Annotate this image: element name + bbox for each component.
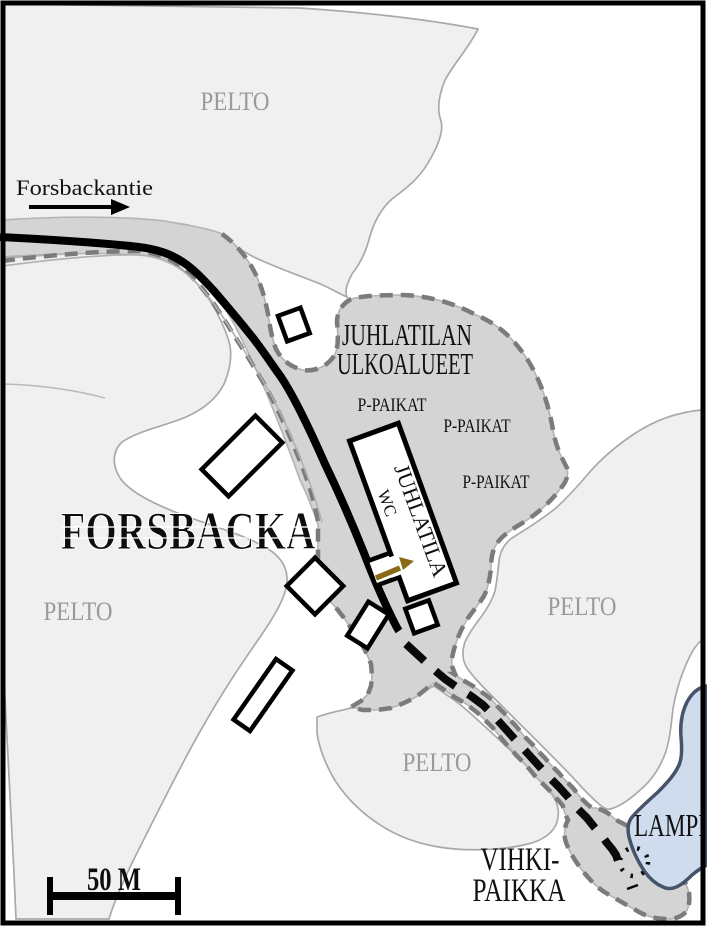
svg-text:PELTO: PELTO	[201, 87, 270, 116]
svg-text:LAMPI: LAMPI	[634, 807, 706, 843]
svg-text:PELTO: PELTO	[403, 748, 472, 777]
svg-text:P-PAIKAT: P-PAIKAT	[444, 416, 511, 437]
svg-text:PELTO: PELTO	[44, 597, 113, 626]
svg-text:P-PAIKAT: P-PAIKAT	[358, 395, 427, 416]
svg-text:P-PAIKAT: P-PAIKAT	[463, 472, 530, 493]
svg-text:PAIKKA: PAIKKA	[473, 873, 566, 909]
svg-text:FORSBACKA: FORSBACKA	[61, 501, 316, 561]
svg-text:PELTO: PELTO	[548, 592, 617, 621]
svg-text:Forsbackantie: Forsbackantie	[16, 175, 153, 200]
svg-text:50 M: 50 M	[87, 862, 141, 898]
svg-text:ULKOALUEET: ULKOALUEET	[337, 346, 473, 381]
